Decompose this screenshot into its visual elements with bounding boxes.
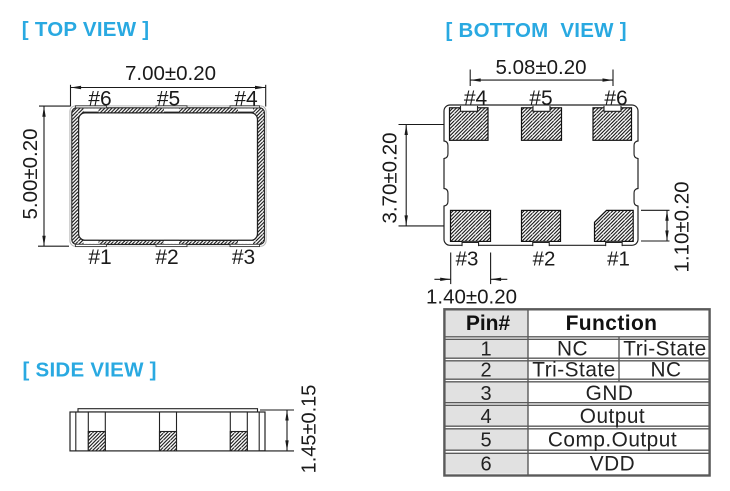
svg-text:#4: #4 <box>464 87 488 110</box>
svg-text:#5: #5 <box>529 87 552 110</box>
svg-text:Tri-State: Tri-State <box>623 338 706 361</box>
svg-text:#2: #2 <box>155 246 178 269</box>
svg-text:[ SIDE VIEW ]: [ SIDE VIEW ] <box>23 359 157 382</box>
svg-text:#2: #2 <box>533 248 556 271</box>
svg-text:7.00±0.20: 7.00±0.20 <box>125 62 216 85</box>
svg-text:GND: GND <box>586 382 634 405</box>
svg-text:1.40±0.20: 1.40±0.20 <box>426 286 517 309</box>
svg-text:VDD: VDD <box>590 452 635 475</box>
svg-text:Pin#: Pin# <box>466 312 511 335</box>
svg-text:1: 1 <box>480 339 491 361</box>
svg-text:5: 5 <box>480 429 491 451</box>
svg-text:NC: NC <box>557 338 588 361</box>
svg-text:[ TOP VIEW ]: [ TOP VIEW ] <box>22 18 150 41</box>
svg-text:#6: #6 <box>88 87 111 110</box>
svg-text:Comp.Output: Comp.Output <box>548 428 677 451</box>
svg-text:NC: NC <box>650 359 681 382</box>
svg-text:6: 6 <box>480 453 491 475</box>
svg-text:#6: #6 <box>604 87 627 110</box>
svg-text:#3: #3 <box>232 246 255 269</box>
svg-text:5.00±0.20: 5.00±0.20 <box>19 128 42 219</box>
svg-text:Function: Function <box>566 312 658 335</box>
svg-text:Output: Output <box>580 405 645 428</box>
svg-text:#3: #3 <box>456 248 479 271</box>
svg-text:#1: #1 <box>88 246 111 269</box>
svg-text:[ BOTTOM VIEW ]: [ BOTTOM VIEW ] <box>446 19 627 42</box>
svg-text:Tri-State: Tri-State <box>532 359 615 382</box>
svg-text:4: 4 <box>480 406 491 428</box>
svg-text:#4: #4 <box>234 87 258 110</box>
svg-text:3.70±0.20: 3.70±0.20 <box>378 132 401 223</box>
svg-text:#5: #5 <box>157 87 180 110</box>
svg-text:1.10±0.20: 1.10±0.20 <box>671 181 694 272</box>
svg-text:1.45±0.15: 1.45±0.15 <box>299 385 321 474</box>
svg-text:5.08±0.20: 5.08±0.20 <box>495 56 586 79</box>
svg-text:#1: #1 <box>607 248 630 271</box>
svg-text:2: 2 <box>480 360 491 382</box>
svg-text:3: 3 <box>480 383 491 405</box>
